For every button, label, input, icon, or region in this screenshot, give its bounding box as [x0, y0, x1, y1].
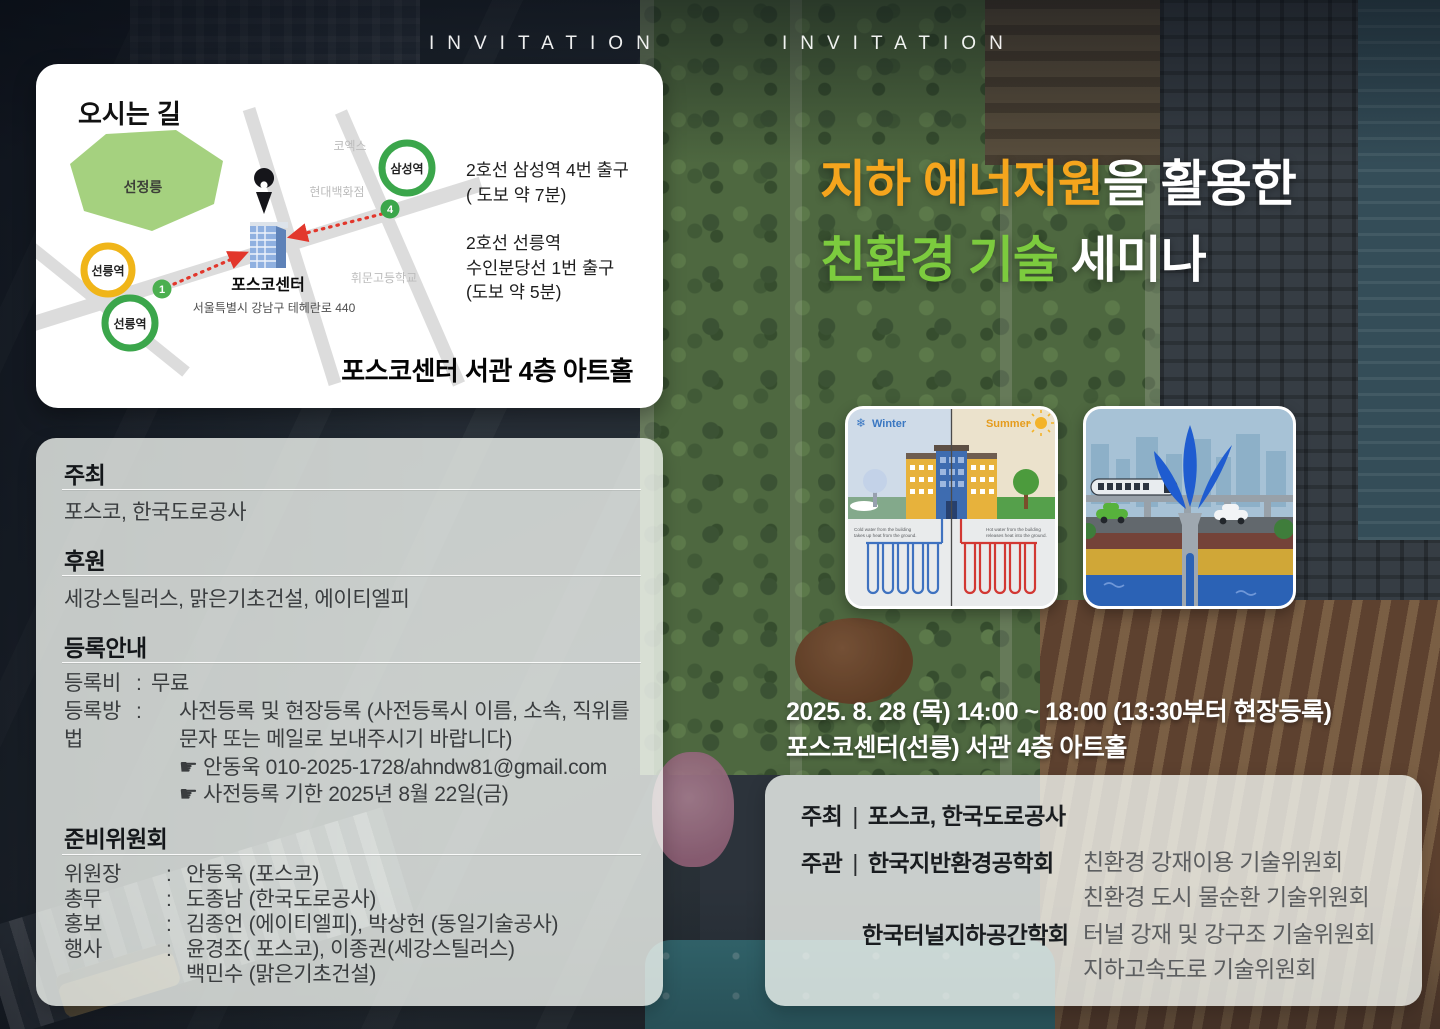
org2-committee2: 지하고속도로 기술위원회 — [1083, 952, 1375, 987]
host-label: 주최 — [801, 803, 842, 829]
venue-highlight: 포스코센터 서관 4층 아트홀 — [341, 351, 633, 388]
posco-building — [250, 222, 288, 268]
title-line1-highlight: 지하 에너지원 — [820, 156, 1103, 212]
coex-label: 코엑스 — [333, 139, 366, 153]
transit-directions: 2호선 삼성역 4번 출구 ( 도보 약 7분) 2호선 선릉역 수인분당선 1… — [466, 158, 629, 329]
host-value: 포스코, 한국도로공사 — [868, 803, 1066, 829]
separator-bar: | — [852, 803, 857, 829]
organizer-row: 주관|한국지반환경공학회 — [801, 844, 1054, 878]
samseong-direction: 2호선 삼성역 4번 출구 ( 도보 약 7분) — [466, 158, 629, 207]
committee-member-line1: 윤경조( 포스코), 이종권(세강스틸러스) — [186, 937, 515, 962]
seolleung-direction-line1: 2호선 선릉역 — [466, 231, 629, 256]
divider — [62, 662, 641, 663]
committee-row: 총무 : 도종남 (한국도로공사) — [64, 887, 639, 912]
seminar-title: 지하 에너지원을 활용한 친환경 기술 세미나 — [820, 146, 1296, 298]
host-value: 포스코, 한국도로공사 — [64, 496, 639, 526]
colon: : — [136, 670, 144, 698]
snowflake-icon: ❄ — [856, 416, 866, 430]
winter-label: ❄ Winter — [856, 416, 907, 430]
seolleung-direction-line2: 수인분당선 1번 출구 — [466, 256, 629, 281]
hyundai-label: 현대백화점 — [309, 185, 364, 199]
event-venue-line: 포스코센터(선릉) 서관 4층 아트홀 — [786, 730, 1332, 766]
colon: : — [166, 862, 174, 887]
committee-section-title: 준비위원회 — [64, 820, 639, 854]
summer-caption-line2: releases heat into the ground. — [986, 533, 1047, 538]
park-label: 선정릉 — [124, 179, 163, 195]
svg-text:1: 1 — [159, 284, 165, 296]
committee-row: 행사 : 윤경조( 포스코), 이종권(세강스틸러스) 백민수 (맑은기초건설) — [64, 937, 639, 987]
method-label: 등록방법 — [64, 698, 136, 754]
invitation-word-right: INVITATION — [782, 33, 1016, 55]
organizer-panel: 주최|포스코, 한국도로공사 주관|한국지반환경공학회 친환경 강재이용 기술위… — [765, 775, 1422, 1006]
station-seolleung-bundang: 선릉역 — [84, 246, 132, 294]
directions-card-title: 오시는 길 — [78, 94, 181, 131]
park-area: 선정릉 — [70, 130, 223, 231]
seminar-title-line1: 지하 에너지원을 활용한 — [820, 146, 1296, 222]
committee-role: 행사 — [64, 937, 166, 987]
svg-text:삼성역: 삼성역 — [390, 161, 423, 176]
fee-label: 등록비 — [64, 670, 136, 698]
station-seolleung-line2: 선릉역 — [105, 298, 155, 348]
station-samseong: 삼성역 — [382, 143, 432, 193]
committee-member: 도종남 (한국도로공사) — [186, 887, 376, 912]
seolleung-direction-line3: (도보 약 5분) — [466, 280, 629, 305]
separator-bar: | — [852, 850, 857, 876]
fee-value: 무료 — [151, 670, 189, 698]
exit-1-badge: 1 — [153, 280, 172, 299]
committee-role: 홍보 — [64, 912, 166, 937]
committee-role: 위원장 — [64, 862, 166, 887]
method-line1: 사전등록 및 현장등록 (사전등록시 이름, 소속, 직위를 — [179, 698, 629, 726]
summer-text: Summer — [986, 418, 1031, 430]
organizer2-committees: 터널 강재 및 강구조 기술위원회 지하고속도로 기술위원회 — [1083, 917, 1375, 987]
organizer-label: 주관 — [801, 850, 842, 876]
committee-list: 위원장 : 안동욱 (포스코) 총무 : 도종남 (한국도로공사) 홍보 : 김… — [64, 862, 639, 987]
registration-details: 등록비 : 무료 등록방법 : 사전등록 및 현장등록 (사전등록시 이름, 소… — [64, 670, 639, 808]
groundwater-diagram-card — [1083, 406, 1296, 609]
geothermal-diagram-card: ❄ Winter Summer Cold water from the buil… — [845, 406, 1058, 609]
seolleung-direction: 2호선 선릉역 수인분당선 1번 출구 (도보 약 5분) — [466, 231, 629, 305]
summer-caption: Hot water from the building releases hea… — [986, 527, 1047, 538]
svg-text:선릉역: 선릉역 — [113, 316, 146, 331]
event-datetime: 2025. 8. 28 (목) 14:00 ~ 18:00 (13:30부터 현… — [786, 694, 1332, 766]
organizer1-committees: 친환경 강재이용 기술위원회 친환경 도시 물순환 기술위원회 — [1083, 845, 1369, 915]
host-section-title: 주최 — [64, 456, 639, 490]
svg-text:선릉역: 선릉역 — [91, 263, 124, 278]
geothermal-diagram: ❄ Winter Summer Cold water from the buil… — [848, 409, 1055, 606]
sun-icon — [1035, 417, 1047, 429]
method-value: 사전등록 및 현장등록 (사전등록시 이름, 소속, 직위를 문자 또는 메일로… — [179, 698, 629, 754]
seminar-title-line2: 친환경 기술 세미나 — [820, 222, 1296, 298]
committee-member: 김종언 (에이티엘피), 박상헌 (동일기술공사) — [186, 912, 558, 937]
winter-caption-line2: takes up heat from the ground. — [854, 533, 917, 538]
colon: : — [166, 912, 174, 937]
building-address: 서울특별시 강남구 테헤란로 440 — [193, 301, 356, 315]
org1-committee1: 친환경 강재이용 기술위원회 — [1083, 845, 1369, 880]
divider — [62, 575, 641, 576]
groundwater-diagram — [1086, 409, 1293, 606]
building-label: 포스코센터 — [231, 276, 305, 294]
method-line2: 문자 또는 메일로 보내주시기 바랍니다) — [179, 726, 629, 754]
sponsor-value: 세강스틸러스, 맑은기초건설, 에이티엘피 — [64, 583, 639, 613]
invitation-poster: INVITATION INVITATION 선정릉 코엑스 현대백화점 — [0, 0, 1440, 1029]
committee-member: 안동욱 (포스코) — [186, 862, 319, 887]
divider — [62, 489, 641, 490]
organizer1-name: 한국지반환경공학회 — [868, 850, 1054, 876]
whimoon-label: 휘문고등학교 — [351, 271, 417, 285]
svg-text:4: 4 — [387, 204, 394, 216]
committee-member-line2: 백민수 (맑은기초건설) — [186, 962, 515, 987]
org1-committee2: 친환경 도시 물순환 기술위원회 — [1083, 880, 1369, 915]
samseong-direction-line2: ( 도보 약 7분) — [466, 183, 629, 208]
winter-caption-line1: Cold water from the building — [854, 527, 912, 532]
colon: : — [136, 698, 144, 754]
divider — [62, 854, 641, 855]
title-line2-highlight: 친환경 기술 — [820, 232, 1058, 288]
invitation-word-left: INVITATION — [429, 33, 663, 55]
organizer2-name: 한국터널지하공간학회 — [862, 916, 1069, 950]
colon: : — [166, 887, 174, 912]
event-datetime-line: 2025. 8. 28 (목) 14:00 ~ 18:00 (13:30부터 현… — [786, 694, 1332, 730]
committee-row: 홍보 : 김종언 (에이티엘피), 박상헌 (동일기술공사) — [64, 912, 639, 937]
directions-card: 선정릉 코엑스 현대백화점 휘문고등학교 — [36, 64, 663, 408]
info-panel: 주최 포스코, 한국도로공사 후원 세강스틸러스, 맑은기초건설, 에이티엘피 … — [36, 438, 663, 1006]
colon: : — [166, 937, 174, 987]
committee-row: 위원장 : 안동욱 (포스코) — [64, 862, 639, 887]
summer-caption-line1: Hot water from the building — [986, 527, 1041, 532]
sponsor-section-title: 후원 — [64, 542, 639, 576]
exit-4-badge: 4 — [381, 200, 400, 219]
registration-section-title: 등록안내 — [64, 629, 639, 663]
deadline-line: ☛ 사전등록 기한 2025년 8월 22일(금) — [179, 781, 639, 808]
org2-committee1: 터널 강재 및 강구조 기술위원회 — [1083, 917, 1375, 952]
contact-line: ☛ 안동욱 010-2025-1728/ahndw81@gmail.com — [179, 754, 639, 781]
method-row: 등록방법 : 사전등록 및 현장등록 (사전등록시 이름, 소속, 직위를 문자… — [64, 698, 639, 754]
title-line1-rest: 을 활용한 — [1103, 156, 1296, 212]
title-line2-rest: 세미나 — [1058, 232, 1206, 288]
winter-caption: Cold water from the building takes up he… — [854, 527, 917, 538]
committee-role: 총무 — [64, 887, 166, 912]
samseong-direction-line1: 2호선 삼성역 4번 출구 — [466, 158, 629, 183]
committee-member: 윤경조( 포스코), 이종권(세강스틸러스) 백민수 (맑은기초건설) — [186, 937, 515, 987]
fee-row: 등록비 : 무료 — [64, 670, 639, 698]
winter-text: Winter — [872, 418, 907, 430]
host-row: 주최|포스코, 한국도로공사 — [801, 797, 1066, 831]
